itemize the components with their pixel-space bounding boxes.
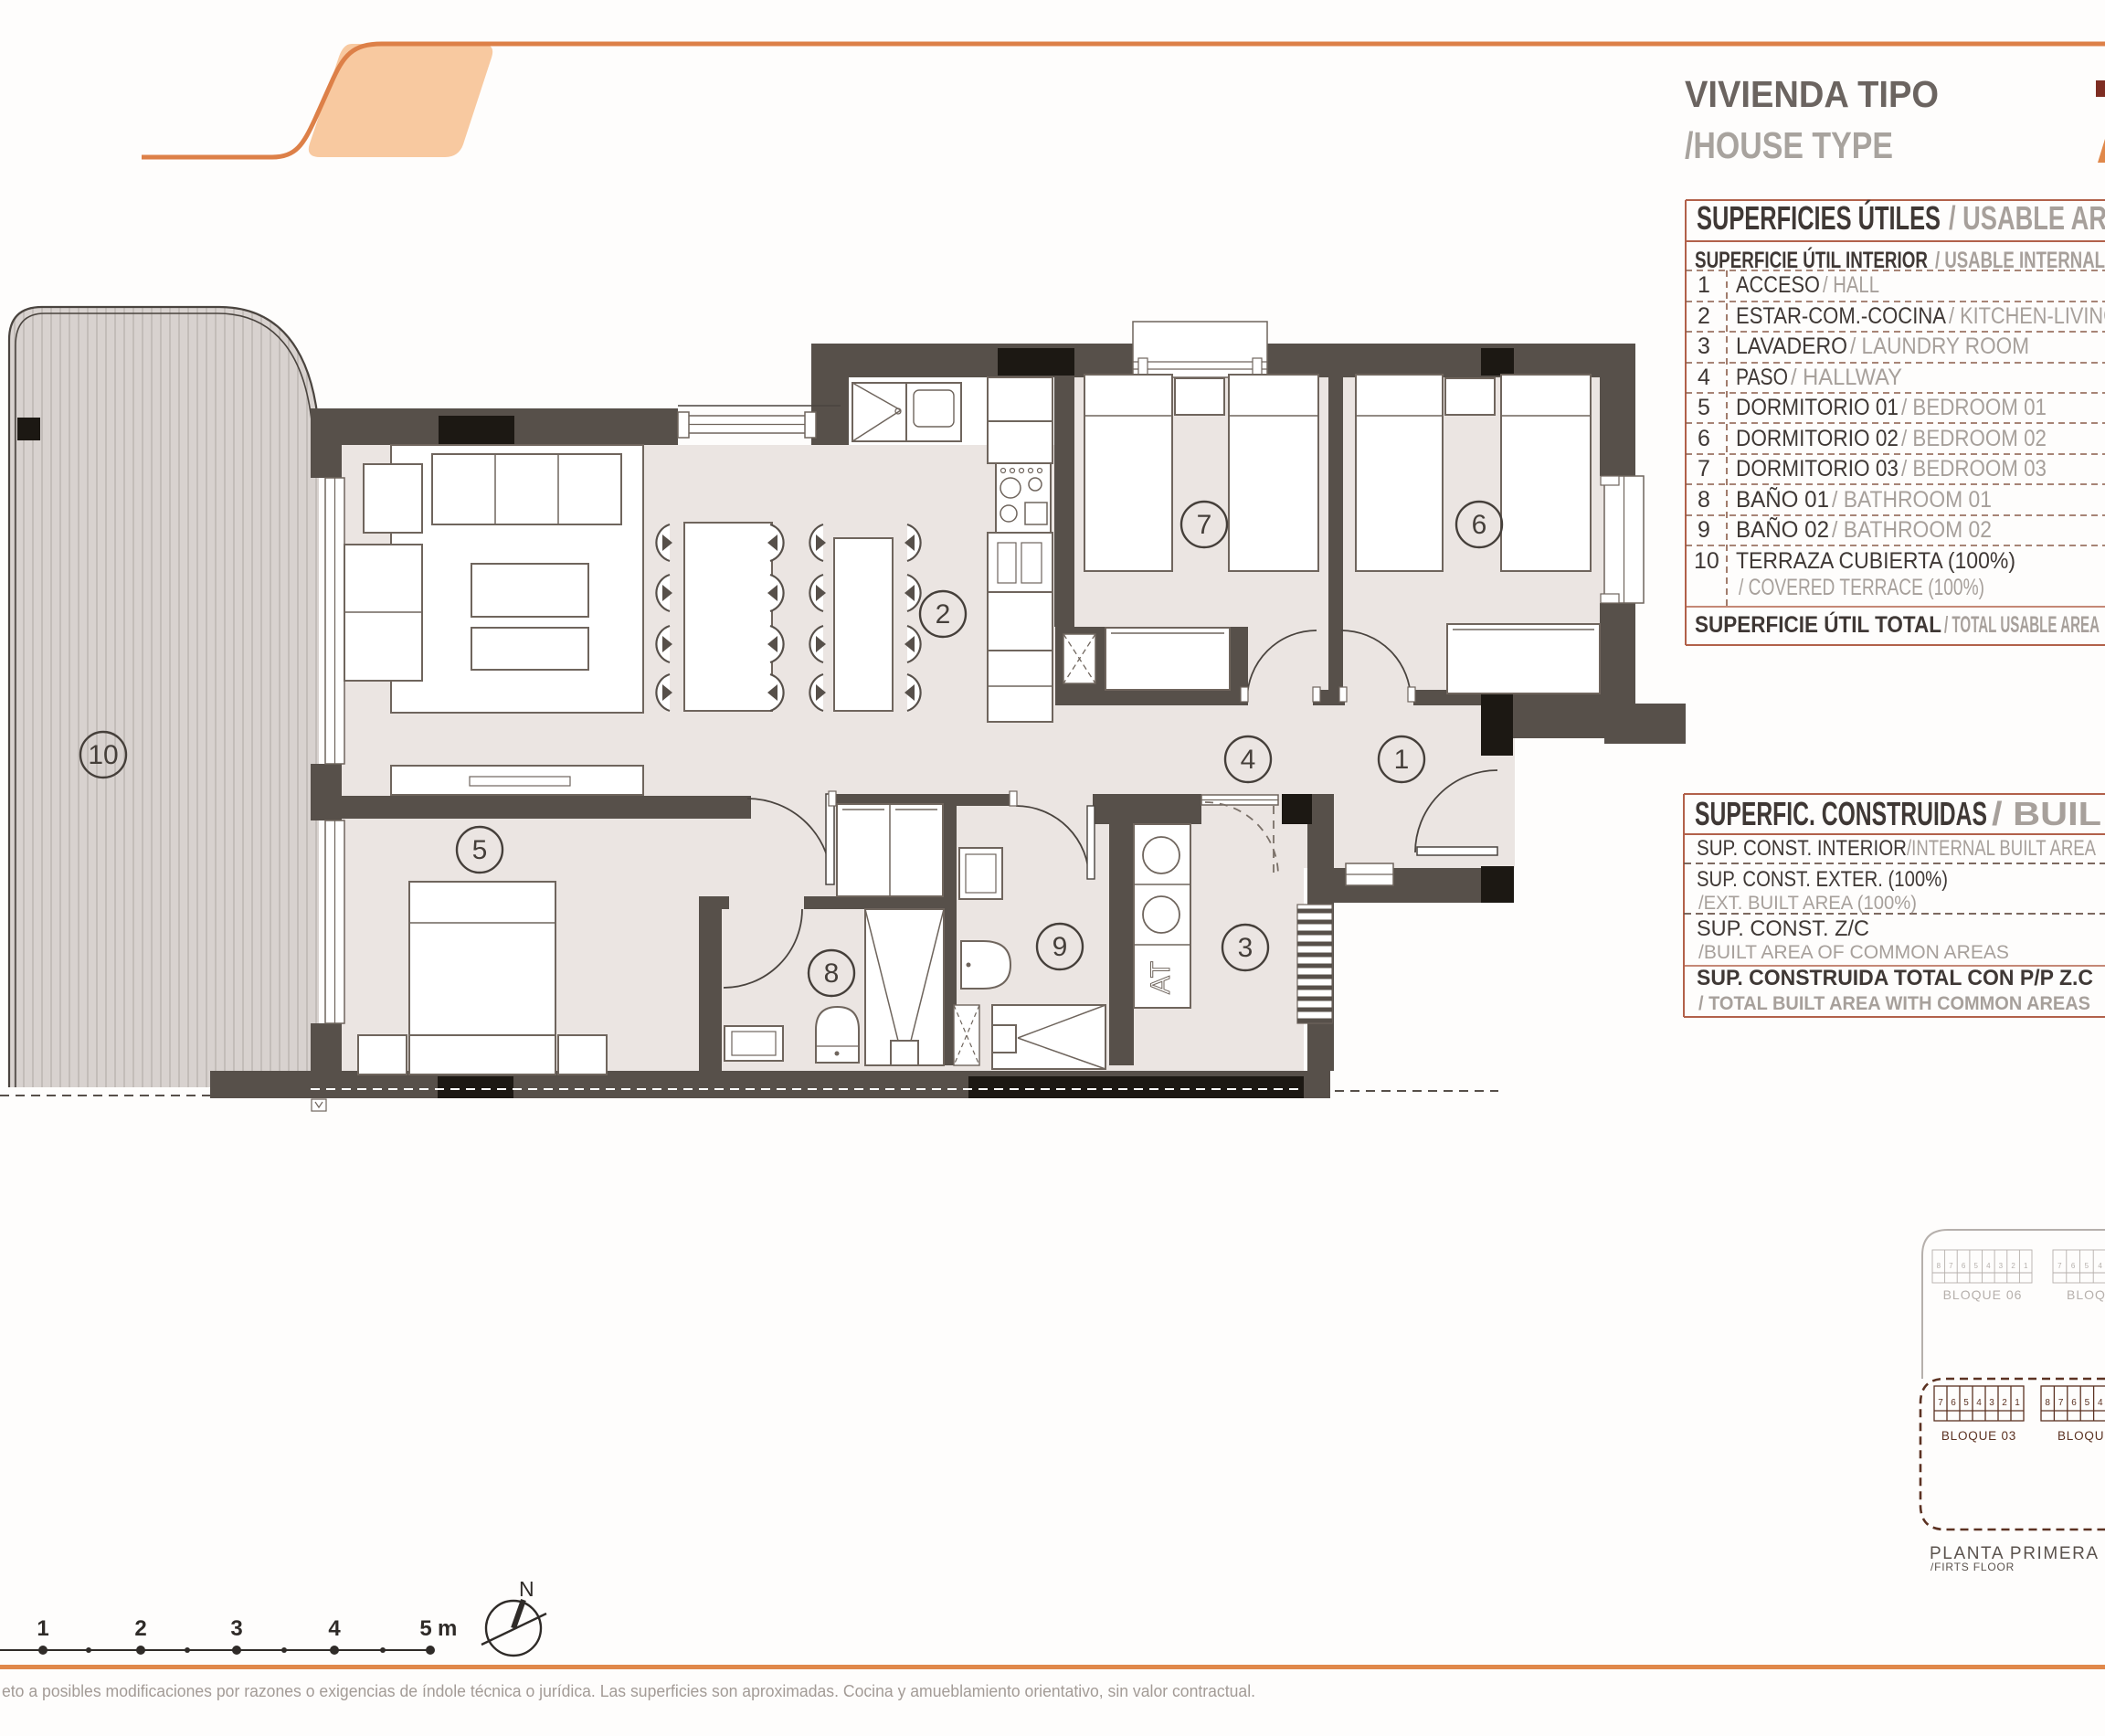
svg-text:/ BATHROOM 01: / BATHROOM 01 [1832, 487, 1992, 513]
svg-text:/ KITCHEN-LIVING: / KITCHEN-LIVING [1949, 303, 2105, 329]
svg-text:7: 7 [2058, 1398, 2064, 1408]
svg-text:1: 1 [1394, 745, 1410, 775]
svg-text:6: 6 [2071, 1398, 2077, 1408]
svg-text:/ USABLE INTERNAL: / USABLE INTERNAL [1935, 248, 2105, 273]
svg-text:4: 4 [2098, 1398, 2103, 1408]
svg-text:/ USABLE AR: / USABLE AR [1949, 199, 2105, 237]
svg-text:BLOQUE: BLOQUE [2057, 1429, 2105, 1443]
svg-text:SUPERFICIES ÚTILES: SUPERFICIES ÚTILES [1697, 198, 1941, 237]
svg-text:3: 3 [230, 1616, 242, 1641]
svg-text:ACCESO: ACCESO [1736, 272, 1820, 298]
svg-text:/EXT. BUILT AREA (100%): /EXT. BUILT AREA (100%) [1698, 893, 1917, 914]
svg-text:10: 10 [88, 740, 118, 770]
svg-text:8: 8 [1698, 487, 1710, 513]
svg-text:SUP. CONST. INTERIOR: SUP. CONST. INTERIOR [1697, 836, 1907, 861]
svg-text:BLOQUE 06: BLOQUE 06 [1943, 1287, 2023, 1302]
svg-text:8: 8 [824, 958, 840, 989]
svg-text:SUPERFIC. CONSTRUIDAS: SUPERFIC. CONSTRUIDAS [1695, 795, 1987, 832]
svg-text:4: 4 [1986, 1262, 1991, 1270]
svg-text:2: 2 [2011, 1262, 2015, 1270]
svg-text:/ BUIL: / BUIL [1992, 795, 2101, 832]
svg-text:6: 6 [1962, 1262, 1966, 1270]
svg-text:/ BEDROOM 02: / BEDROOM 02 [1901, 426, 2047, 451]
svg-text:ESTAR-COM.-COCINA: ESTAR-COM.-COCINA [1736, 303, 1946, 329]
svg-text:/HOUSE TYPE: /HOUSE TYPE [1685, 124, 1893, 166]
svg-text:SUPERFICIE ÚTIL TOTAL: SUPERFICIE ÚTIL TOTAL [1695, 610, 1941, 638]
svg-text:/ TOTAL BUILT AREA WITH COMMON: / TOTAL BUILT AREA WITH COMMON AREAS [1698, 993, 2090, 1014]
svg-text:2: 2 [2002, 1398, 2007, 1408]
svg-text:/ HALL: / HALL [1823, 272, 1879, 298]
svg-text:7: 7 [1949, 1262, 1953, 1270]
svg-text:m: m [438, 1616, 457, 1641]
svg-text:/ TOTAL USABLE AREA: / TOTAL USABLE AREA [1944, 612, 2100, 638]
svg-text:DORMITORIO 01: DORMITORIO 01 [1736, 395, 1899, 420]
svg-text:/ BEDROOM 01: / BEDROOM 01 [1901, 395, 2047, 420]
svg-text:5: 5 [2085, 1398, 2090, 1408]
svg-text:4: 4 [1241, 745, 1256, 775]
svg-text:6: 6 [1472, 510, 1487, 540]
svg-text:/ COVERED TERRACE (100%): / COVERED TERRACE (100%) [1739, 575, 1984, 600]
svg-text:DORMITORIO 03: DORMITORIO 03 [1736, 456, 1899, 482]
svg-text:8: 8 [1937, 1262, 1941, 1270]
svg-text:4: 4 [2098, 1262, 2102, 1270]
svg-text:5: 5 [472, 835, 488, 865]
svg-text:3: 3 [1989, 1398, 1994, 1408]
svg-text:2: 2 [134, 1616, 146, 1641]
svg-text:1: 1 [2015, 1398, 2020, 1408]
svg-text:5: 5 [1698, 395, 1710, 420]
svg-text:SUPERFICIE ÚTIL INTERIOR: SUPERFICIE ÚTIL INTERIOR [1695, 246, 1928, 273]
svg-text:/ BEDROOM 03: / BEDROOM 03 [1901, 456, 2047, 482]
svg-text:7: 7 [1938, 1398, 1943, 1408]
svg-text:N: N [519, 1577, 534, 1601]
svg-text:TERRAZA CUBIERTA (100%): TERRAZA CUBIERTA (100%) [1736, 548, 2015, 574]
svg-text:9: 9 [1052, 932, 1068, 962]
svg-text:DORMITORIO 02: DORMITORIO 02 [1736, 426, 1899, 451]
svg-text:6: 6 [1951, 1398, 1956, 1408]
svg-text:SUP. CONST. EXTER. (100%): SUP. CONST. EXTER. (100%) [1697, 867, 1948, 892]
svg-text:1: 1 [2024, 1262, 2028, 1270]
svg-text:10: 10 [1694, 548, 1719, 574]
svg-text:9: 9 [1698, 517, 1710, 543]
svg-text:7: 7 [2057, 1262, 2062, 1270]
svg-text:2: 2 [1698, 303, 1710, 329]
svg-text:6: 6 [1698, 426, 1710, 451]
svg-text:6: 6 [2071, 1262, 2076, 1270]
svg-text:/ BATHROOM 02: / BATHROOM 02 [1832, 517, 1992, 543]
svg-text:4: 4 [328, 1616, 341, 1641]
svg-text:4: 4 [1698, 365, 1710, 390]
svg-text:PASO: PASO [1736, 365, 1788, 390]
svg-text:1: 1 [37, 1616, 48, 1641]
svg-text:8: 8 [2045, 1398, 2050, 1408]
svg-text:5: 5 [419, 1616, 431, 1641]
svg-text:SUP. CONST. Z/C: SUP. CONST. Z/C [1697, 916, 1869, 941]
svg-text:AT: AT [1146, 961, 1176, 994]
svg-text:/ LAUNDRY ROOM: / LAUNDRY ROOM [1850, 333, 2029, 359]
svg-text:BLOQUE 03: BLOQUE 03 [1941, 1429, 2016, 1443]
svg-text:2: 2 [936, 599, 951, 630]
svg-text:3: 3 [1238, 933, 1253, 963]
svg-text:5: 5 [2085, 1262, 2089, 1270]
svg-text:1: 1 [1698, 272, 1710, 298]
svg-text:LAVADERO: LAVADERO [1736, 333, 1847, 359]
svg-text:eto a posibles modificaciones: eto a posibles modificaciones por razone… [2, 1681, 1255, 1700]
svg-text:5: 5 [1973, 1262, 1978, 1270]
svg-text:/INTERNAL BUILT AREA: /INTERNAL BUILT AREA [1907, 836, 2096, 861]
svg-text:/BUILT AREA OF COMMON AREAS: /BUILT AREA OF COMMON AREAS [1698, 942, 2009, 963]
svg-text:3: 3 [1999, 1262, 2004, 1270]
svg-text:7: 7 [1197, 510, 1212, 540]
svg-text:4: 4 [1976, 1398, 1982, 1408]
svg-text:7: 7 [1698, 456, 1710, 482]
svg-text:BLOQU: BLOQU [2067, 1287, 2105, 1302]
svg-text:BAÑO 02: BAÑO 02 [1736, 516, 1829, 543]
svg-text:BAÑO 01: BAÑO 01 [1736, 486, 1829, 513]
svg-text:3: 3 [1698, 333, 1710, 359]
svg-text:VIVIENDA TIPO: VIVIENDA TIPO [1685, 73, 1939, 115]
svg-text:SUP. CONSTRUIDA TOTAL CON P/P: SUP. CONSTRUIDA TOTAL CON P/P Z.C [1697, 966, 2093, 990]
svg-text:/ HALLWAY: / HALLWAY [1791, 365, 1902, 390]
svg-text:5: 5 [1963, 1398, 1969, 1408]
svg-text:/FIRTS FLOOR: /FIRTS FLOOR [1930, 1561, 2015, 1573]
